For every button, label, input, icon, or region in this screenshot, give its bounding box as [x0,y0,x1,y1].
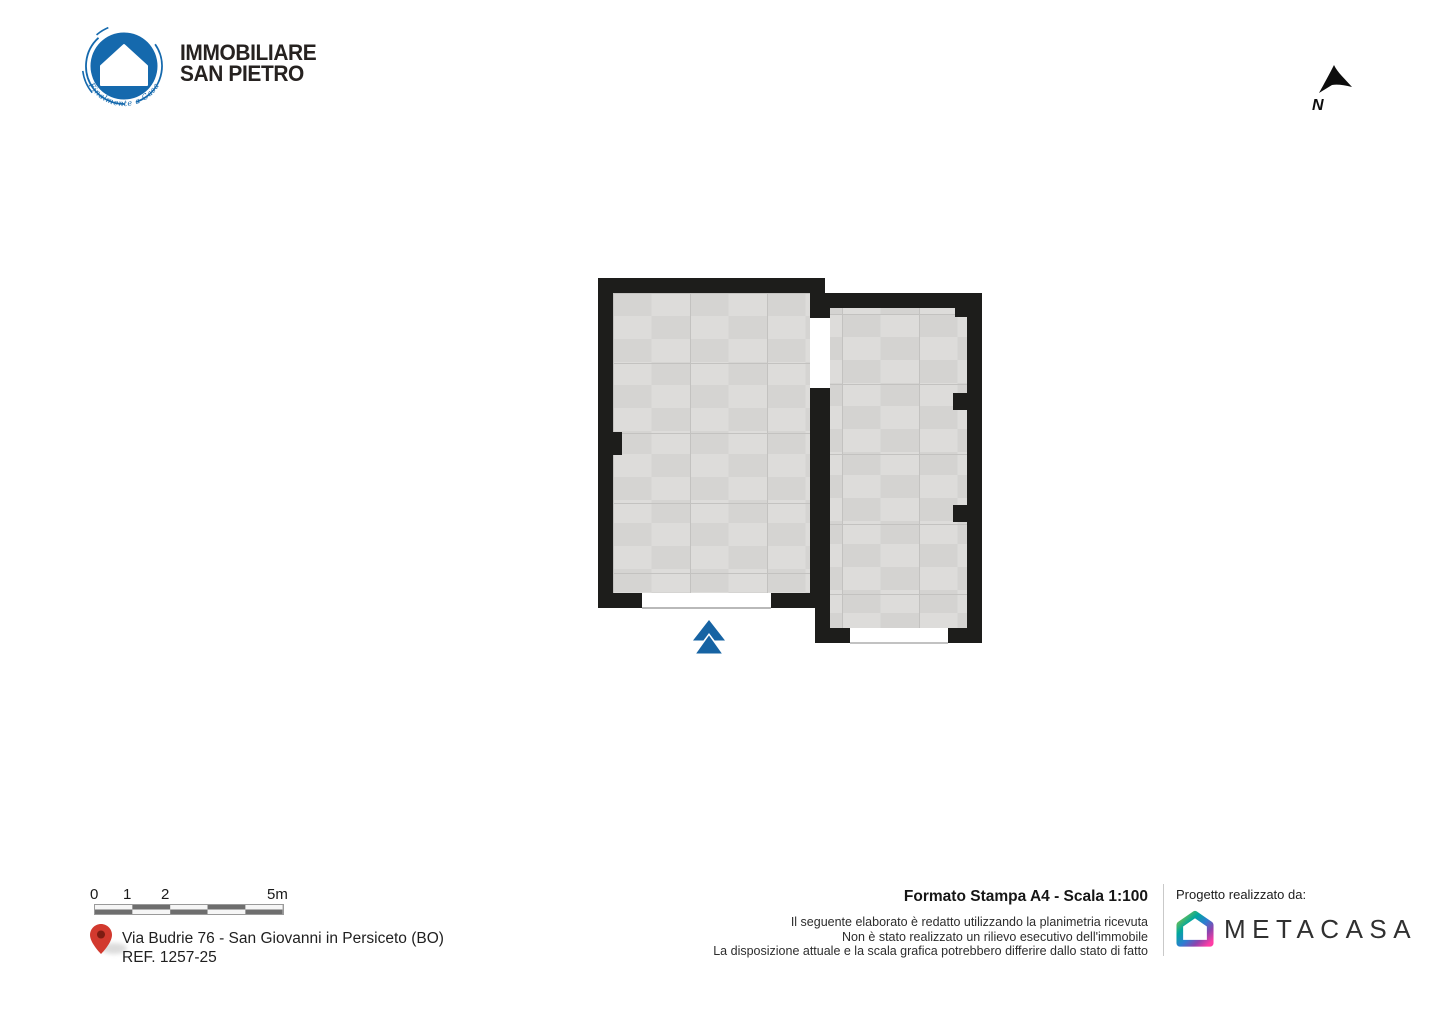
wall-pilaster [613,432,622,455]
room-main-floor [613,293,810,593]
scale-label-0: 0 [90,886,98,903]
disclaimer-line-2: Non è stato realizzato un rilievo esecut… [713,930,1148,945]
property-ref: REF. 1257-25 [122,948,444,967]
metacasa-logo: METACASA [1176,910,1417,948]
address-line: Via Budrie 76 - San Giovanni in Persicet… [122,929,444,948]
door-opening-main [642,593,771,609]
entrance-arrow-icon [693,620,725,654]
print-info: Formato Stampa A4 - Scala 1:100 Il segue… [713,888,1148,959]
passage-opening-between-rooms [810,318,830,388]
agency-name-line2: SAN PIETRO [180,63,316,84]
scale-label-1: 1 [123,886,131,903]
north-arrow-icon: N [1310,58,1362,114]
scale-label-2: 2 [161,886,169,903]
room-side-floor [830,308,967,628]
wall-pilaster [955,308,967,317]
floorplan-sheet: Finalmente a Casa IMMOBILIARE SAN PIETRO… [0,0,1440,1018]
room-main [598,278,825,608]
agency-name-line1: IMMOBILIARE [180,42,316,63]
disclaimer: Il seguente elaborato è redatto utilizza… [713,915,1148,959]
room-side [815,293,982,643]
location-pin-icon [90,924,112,954]
north-arrow: N [1310,58,1362,114]
disclaimer-line-1: Il seguente elaborato è redatto utilizza… [713,915,1148,930]
property-address: Via Budrie 76 - San Giovanni in Persicet… [122,929,444,967]
scale-bar [95,905,283,914]
metacasa-logo-icon [1176,910,1214,948]
scale-label-5m: 5m [267,886,288,903]
wall-pilaster [953,505,967,522]
disclaimer-line-3: La disposizione attuale e la scala grafi… [713,944,1148,959]
agency-logo-icon: Finalmente a Casa [76,22,172,118]
door-opening-side [850,628,948,644]
credits: Progetto realizzato da: METACASA [1176,887,1417,948]
agency-logo: Finalmente a Casa IMMOBILIARE SAN PIETRO [76,22,323,118]
north-label: N [1312,97,1324,114]
print-format-title: Formato Stampa A4 - Scala 1:100 [713,888,1148,906]
wall-pilaster [953,393,967,410]
metacasa-brand-name: METACASA [1224,914,1417,945]
credits-divider [1163,884,1164,956]
agency-name: IMMOBILIARE SAN PIETRO [180,42,316,84]
credits-label: Progetto realizzato da: [1176,887,1417,902]
